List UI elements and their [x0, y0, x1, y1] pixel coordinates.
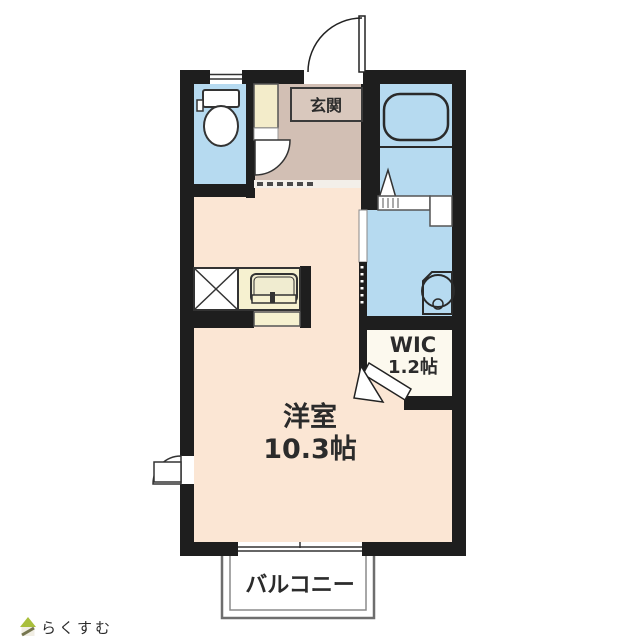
living-room-window [238, 542, 362, 556]
step-hatch [297, 182, 303, 186]
balcony-label: バルコニー [245, 573, 355, 598]
living-room-label: 洋室 [283, 401, 337, 433]
door-hatch [361, 287, 364, 290]
washbasin-counter [378, 196, 430, 210]
hall-storage-closet [254, 84, 278, 128]
logo-text: らくすむ [41, 619, 113, 637]
entrance-door-gap [304, 70, 363, 84]
step-hatch [307, 182, 313, 186]
toilet-tank [203, 90, 239, 107]
toilet-door-threshold [254, 128, 278, 140]
door-hatch [361, 301, 364, 304]
genkan-label: 玄関 [310, 96, 342, 115]
entrance-door-leaf [359, 16, 365, 72]
wall-kitchen-block [194, 310, 254, 328]
toilet-bowl [204, 106, 238, 146]
washroom-door-opening [359, 210, 367, 262]
wall-hall-bath [361, 84, 380, 210]
wall-wic-left [359, 330, 367, 372]
kitchen-faucet [270, 292, 275, 303]
wic-label: WIC [390, 333, 436, 357]
door-hatch [361, 266, 364, 269]
step-hatch [267, 182, 273, 186]
wall-right [452, 70, 466, 556]
step-hatch [257, 182, 263, 186]
wall-wic-bottom [404, 396, 466, 410]
left-door-leaf [154, 462, 181, 482]
kitchen-counter-return [254, 312, 300, 326]
toilet-flush-handle [197, 100, 203, 111]
wall-toilet-bottom [194, 184, 255, 197]
step-hatch [277, 182, 283, 186]
left-door-gap [180, 456, 194, 484]
floor-plan: バルコニー [0, 0, 640, 640]
wall-wic-top [359, 316, 452, 330]
door-hatch [361, 273, 364, 276]
balcony: バルコニー [222, 548, 374, 618]
hall-step [254, 180, 361, 188]
living-room-area-label: 10.3帖 [263, 434, 357, 465]
step-hatch [287, 182, 293, 186]
door-hatch [361, 294, 364, 297]
wall-kitchen-right-stub [300, 266, 311, 328]
toilet-window [210, 70, 242, 84]
door-hatch [361, 280, 364, 283]
wic-area-label: 1.2帖 [388, 356, 438, 378]
bath-unit-corner [430, 196, 452, 226]
toilet-window-gap [210, 70, 242, 84]
